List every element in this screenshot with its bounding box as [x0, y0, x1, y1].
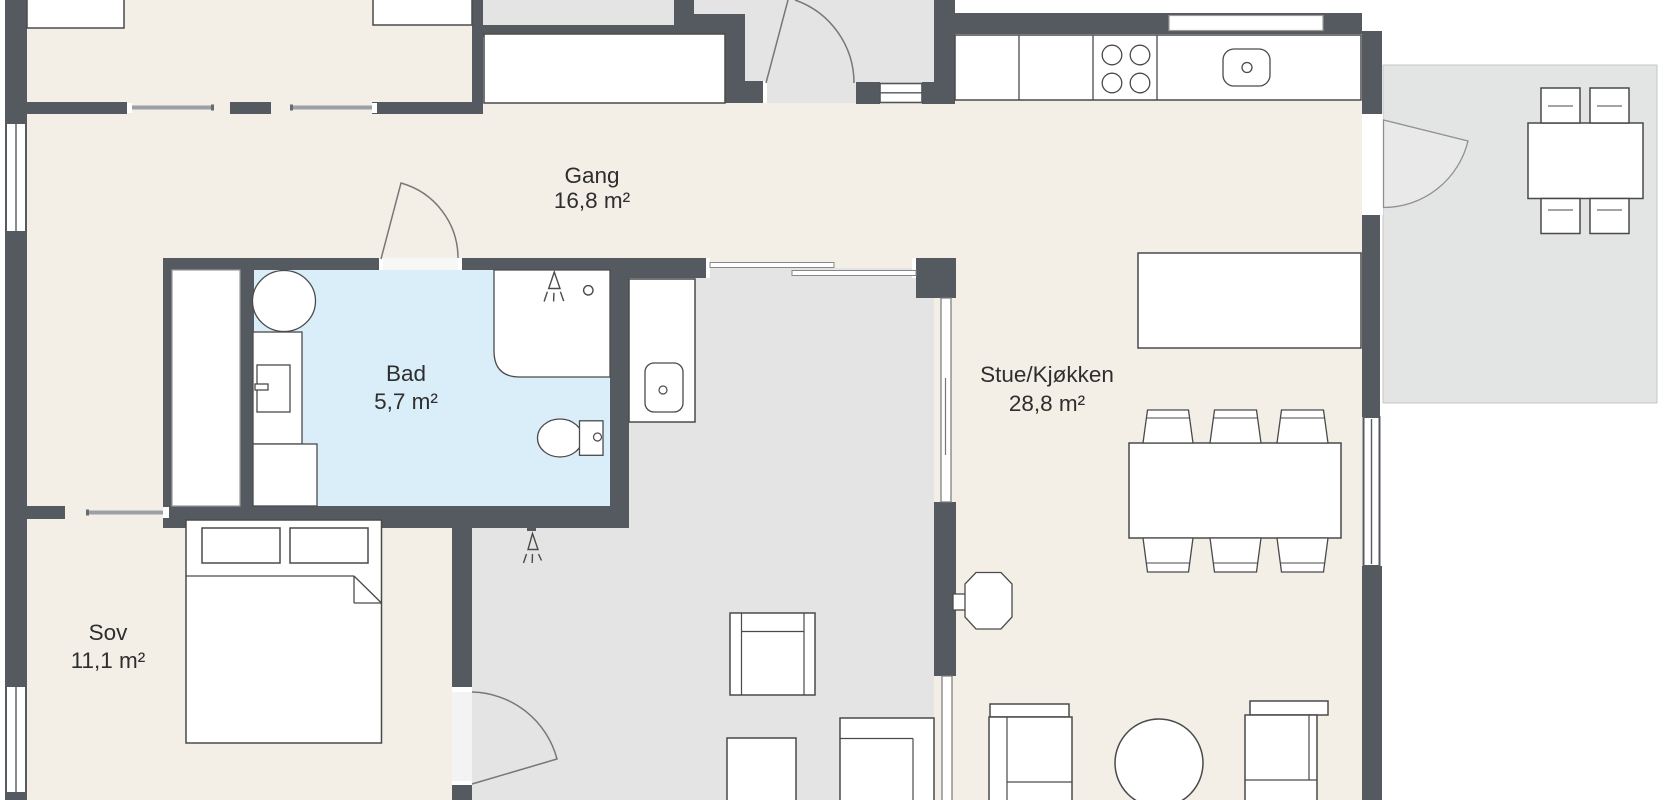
svg-text:5,7 m²: 5,7 m² — [374, 389, 438, 414]
svg-text:Gang: Gang — [564, 163, 619, 188]
svg-text:Sov: Sov — [89, 620, 129, 645]
svg-text:16,8 m²: 16,8 m² — [554, 188, 631, 213]
svg-text:11,1 m²: 11,1 m² — [71, 648, 146, 673]
svg-text:Stue/Kjøkken: Stue/Kjøkken — [980, 362, 1114, 387]
svg-text:Bad: Bad — [386, 361, 426, 386]
svg-text:28,8 m²: 28,8 m² — [1009, 391, 1086, 416]
